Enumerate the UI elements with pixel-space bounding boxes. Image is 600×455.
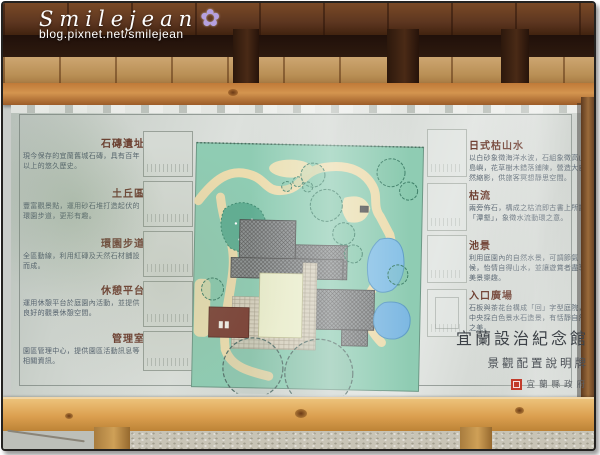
agency-name: 宜蘭縣政府 xyxy=(526,378,589,390)
section-mound-area: 土丘區 豐富觀景點，運用砂石堆打造起伏的環園步道，更形有趣。 xyxy=(23,185,145,222)
section-heading: 入口廣場 xyxy=(469,287,589,302)
section-body: 運用休憩平台於庭園內活動，並提供良好的觀景休憩空間。 xyxy=(23,299,145,319)
rail-post-stub xyxy=(94,427,130,449)
section-body: 現今保存的宜蘭舊城石磚，具有百年以上的悠久歷史。 xyxy=(23,152,145,172)
section-management-office: 管理室 園區管理中心，提供園區活動訊息等相關資訊。 xyxy=(23,330,145,367)
sign-board: 石磚遺址 現今保存的宜蘭舊城石磚，具有百年以上的悠久歷史。 土丘區 豐富觀景點，… xyxy=(11,105,581,397)
watermark: Smilejean ✿ blog.pixnet.net/smilejean xyxy=(39,7,220,41)
sketch-thumbnail xyxy=(143,331,193,371)
wooden-beam xyxy=(3,83,594,105)
flower-icon: ✿ xyxy=(200,7,220,31)
section-heading: 環園步道 xyxy=(23,235,145,250)
section-garden-trail: 環園步道 全區動線，利用紅磚及天然石材舖設而成。 xyxy=(23,235,145,272)
section-body: 園區管理中心，提供園區活動訊息等相關資訊。 xyxy=(23,347,145,367)
section-heading: 枯流 xyxy=(469,187,589,202)
section-dry-landscape: 日式枯山水 以白砂象徵海洋水波，石組象徵高山島嶼，花草樹木錯落鋪陳，營造大自然縮… xyxy=(469,137,589,183)
sketch-thumbnail xyxy=(143,231,193,277)
section-heading: 石磚遺址 xyxy=(23,135,145,150)
wood-knot xyxy=(515,407,524,414)
photo-frame: Smilejean ✿ blog.pixnet.net/smilejean 石磚… xyxy=(1,1,596,451)
section-heading: 管理室 xyxy=(23,330,145,345)
rail-post-stub xyxy=(460,427,492,449)
section-body: 以白砂象徵海洋水波，石組象徵高山島嶼，花草樹木錯落鋪陳，營造大自然縮影，供旅客冥… xyxy=(469,154,589,183)
section-dry-stream: 枯流 兩旁佈石，構成之枯流即古書上所謂「潭壑」，象徵水流動環之意。 xyxy=(469,187,589,224)
sketch-thumbnail xyxy=(143,181,193,227)
scene: Smilejean ✿ blog.pixnet.net/smilejean 石磚… xyxy=(3,3,594,449)
sketch-thumbnail xyxy=(427,235,467,283)
title-block: 宜蘭設治紀念館 景觀配置說明牌 宜蘭縣政府 xyxy=(453,325,589,390)
ground-left-patch xyxy=(3,431,103,449)
section-rest-platform: 休憩平台 運用休憩平台於庭園內活動，並提供良好的觀景休憩空間。 xyxy=(23,282,145,319)
wooden-rail xyxy=(3,397,594,433)
site-map xyxy=(190,139,425,398)
section-heading: 土丘區 xyxy=(23,185,145,200)
section-heading: 池景 xyxy=(469,237,589,252)
section-heading: 休憩平台 xyxy=(23,282,145,297)
sketch-thumbnail xyxy=(427,183,467,231)
section-stone-brick-ruins: 石磚遺址 現今保存的宜蘭舊城石磚，具有百年以上的悠久歷史。 xyxy=(23,135,145,172)
sign-weathered-edge xyxy=(11,105,581,113)
section-heading: 日式枯山水 xyxy=(469,137,589,152)
wood-knot xyxy=(295,409,307,418)
sketch-thumbnail xyxy=(143,281,193,327)
sign-subtitle: 景觀配置說明牌 xyxy=(453,355,589,371)
section-pond-view: 池景 利用庭園內的自然水景，可調節氣候，怡情自得山水，並讓遊賞者盡享美景樂趣。 xyxy=(469,237,589,283)
map-courtyard xyxy=(259,273,303,338)
wood-knot xyxy=(65,413,73,419)
sketch-thumbnail xyxy=(427,129,467,177)
sketch-thumbnail xyxy=(143,131,193,177)
section-body: 兩旁佈石，構成之枯流即古書上所謂「潭壑」，象徵水流動環之意。 xyxy=(469,204,589,224)
section-body: 全區動線，利用紅磚及天然石材舖設而成。 xyxy=(23,252,145,272)
roof-post xyxy=(387,29,419,85)
sign-title: 宜蘭設治紀念館 xyxy=(453,325,589,349)
red-seal-icon xyxy=(511,379,522,390)
section-body: 利用庭園內的自然水景，可調節氣候，怡情自得山水，並讓遊賞者盡享美景樂趣。 xyxy=(469,254,589,283)
section-body: 豐富觀景點，運用砂石堆打造起伏的環園步道，更形有趣。 xyxy=(23,202,145,222)
roof-post xyxy=(501,29,529,85)
roof-post xyxy=(233,29,259,85)
map-red-building xyxy=(209,307,250,338)
